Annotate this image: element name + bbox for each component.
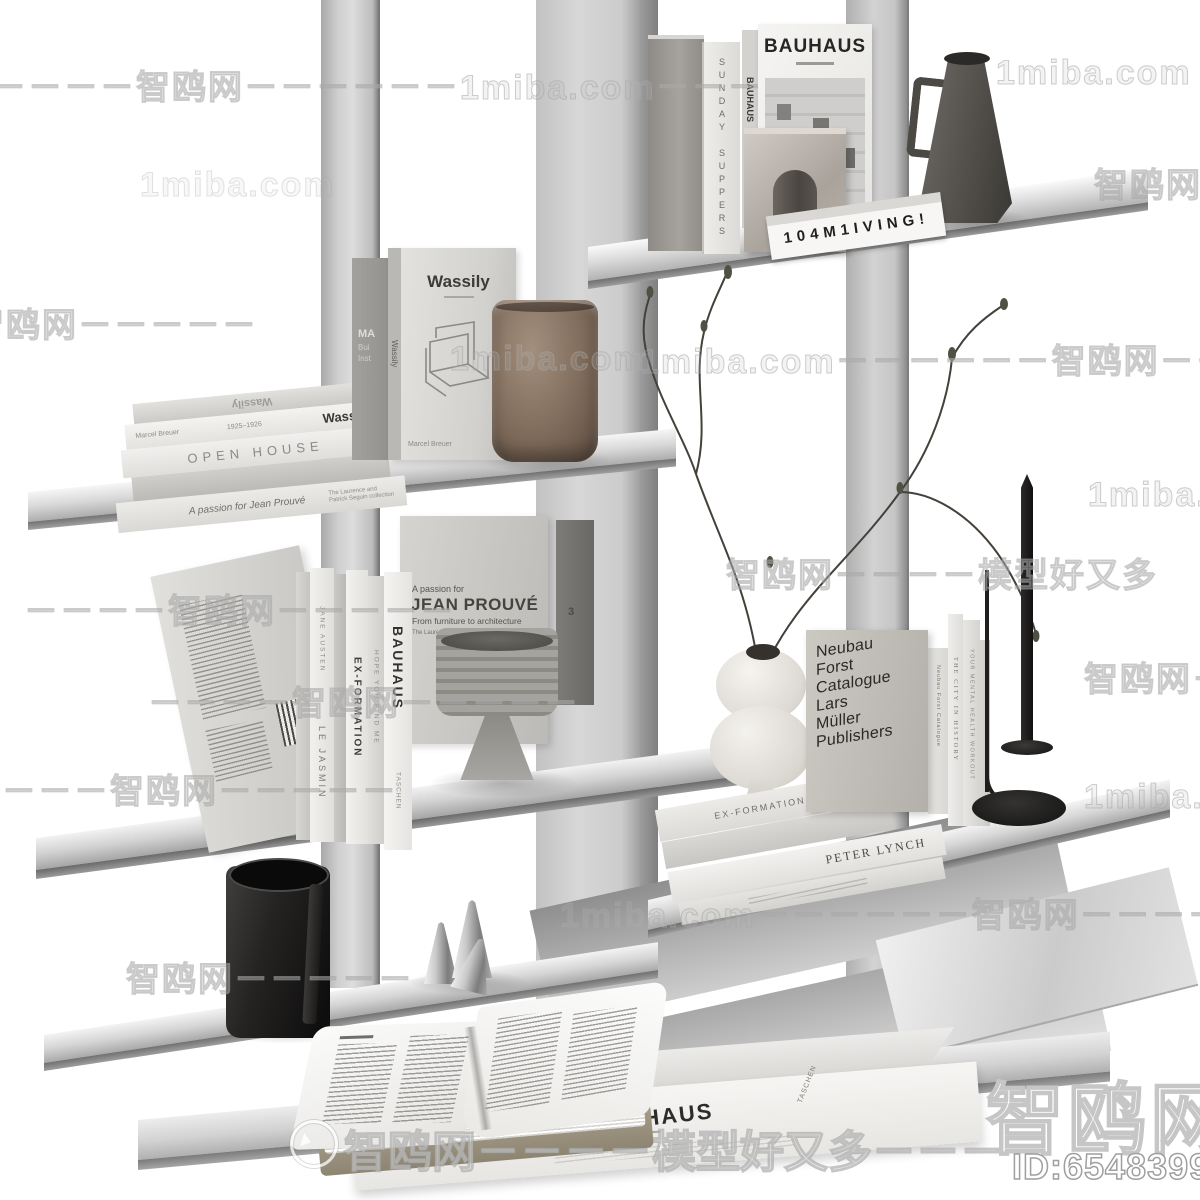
watermark-bottom-line: 智鸥网－－－－模型好又多－－－－ [344, 1116, 1048, 1180]
wassily-standing-spine: Wassily [388, 248, 401, 460]
city-in-history-book: THE CITY IN HISTORY [948, 614, 963, 826]
wassily-spine-years: 1925–1926 [227, 421, 263, 431]
dark-pitcher-opening [944, 52, 990, 65]
brown-vase-rim [496, 302, 594, 312]
wassily-standing-author: Marcel Breuer [408, 441, 452, 448]
watermark-line: 1miba.com－－－－－－智鸥网－－－－ [640, 334, 1200, 383]
watermark-logo-icon [290, 1120, 338, 1168]
white-vase-opening [746, 644, 780, 660]
wassily-standing-title: Wassily [401, 272, 516, 292]
watermark-zhi: 智鸥网－－－－－ [0, 298, 258, 347]
city-in-history-label: THE CITY IN HISTORY [952, 657, 959, 762]
stack-top-foreedge-label: Wassily [231, 395, 273, 411]
black-candle [1021, 474, 1033, 746]
mental-health-book: YOUR MENTAL HEALTH WORKOUT [963, 620, 980, 826]
watermark-miba: 1miba.com [1088, 476, 1200, 515]
prouve-stacked-spine-label: A passion for Jean Prouvé [188, 495, 305, 517]
watermark-miba: 1miba.com [1084, 778, 1200, 817]
slim-dark-book-mark: 3 [568, 606, 574, 618]
watermark-zhi: 智鸥网－－－－－ [1084, 652, 1200, 701]
watermark-miba: 1miba.com [450, 340, 646, 379]
watermark-zhi: －－－－智鸥网－－－－－ [0, 764, 398, 813]
wassily-standing-spine-label: Wassily [390, 340, 399, 367]
branches [600, 262, 1060, 682]
watermark-zhi: －－－－智鸥网－－－－－ [148, 676, 580, 725]
mental-health-label: YOUR MENTAL HEALTH WORKOUT [969, 649, 975, 780]
bauhaus-magazine-subtitle-bar [796, 62, 834, 65]
watermark-miba: 1miba.com [996, 54, 1192, 93]
render-canvas: SUNDAY SUPPERS BAUHAUS BAUHAUS 104M1IVIN… [0, 0, 1200, 1200]
candleholder-handle-rod [985, 570, 989, 792]
brown-glass-vase [492, 300, 598, 462]
candleholder-base [972, 790, 1066, 826]
neubau-book: Neubau Forst Catalogue Lars Müller Publi… [806, 630, 928, 812]
watermark-zhi: 智鸥网－－－－－ [126, 952, 414, 1001]
ribbed-bowl-opening [441, 631, 553, 651]
watermark-line: 1miba.com－－－－－－智鸥网－－－－ [560, 888, 1200, 937]
candle-drip-tray [1001, 740, 1053, 755]
bauhaus-magazine-title: BAUHAUS [758, 36, 872, 58]
wassily-spine-author: Marcel Breuer [135, 429, 179, 440]
watermark-miba: 1miba.com [140, 166, 336, 205]
watermark-line: －－－－－智鸥网－－－－－－1miba.com－－－ [0, 60, 764, 109]
right-stack-top-label: EX-FORMATION [714, 795, 807, 821]
neubau-spine: Neubau Forst Catalogue [928, 648, 948, 814]
watermark-zhi: 智鸥网－－－－－ [1094, 158, 1200, 207]
neubau-spine-label: Neubau Forst Catalogue [935, 665, 941, 747]
watermark-zhi: －－－－智鸥网－－－－－ [24, 584, 456, 633]
watermark-zhi-model: 智鸥网－－－－模型好又多 [726, 548, 1158, 597]
corner-model-id: ID:654839997 [1012, 1146, 1200, 1188]
